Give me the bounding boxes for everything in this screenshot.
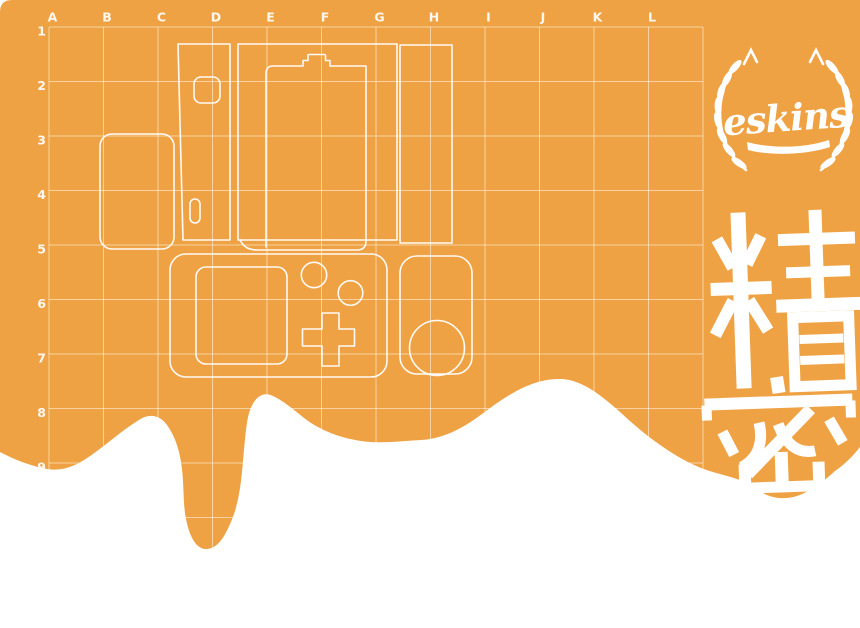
grid-row-label: 2 xyxy=(37,78,46,93)
grid-row-label: 9 xyxy=(37,460,46,475)
grid-row-label: 1 xyxy=(37,24,46,39)
grid-column-label: K xyxy=(593,10,604,25)
grid-column-label: J xyxy=(540,10,546,25)
logo-wordmark: eskins xyxy=(722,92,852,145)
grid-column-label: A xyxy=(48,10,58,25)
grid-column-label: B xyxy=(102,10,112,25)
grid-column-label: L xyxy=(648,10,656,25)
poster: ABCDEFGHIJKL 123456789 xyxy=(0,0,860,628)
grid-column-label: G xyxy=(374,10,384,25)
grid-column-label: I xyxy=(486,10,491,25)
grid-column-label: H xyxy=(429,10,439,25)
grid-row-label: 8 xyxy=(37,405,46,420)
poster-canvas: ABCDEFGHIJKL 123456789 xyxy=(0,0,860,628)
grid-row-label: 6 xyxy=(37,296,46,311)
grid-row-labels: 123456789 xyxy=(37,24,46,475)
grid-row-label: 5 xyxy=(37,242,46,257)
grid-column-label: C xyxy=(157,10,166,25)
grid-row-label: 3 xyxy=(37,133,46,148)
grid-column-label: F xyxy=(321,10,330,25)
grid-column-label: D xyxy=(211,10,221,25)
grid-row-label: 7 xyxy=(37,351,46,366)
grid-row-label: 4 xyxy=(37,187,46,202)
grid-column-label: E xyxy=(266,10,275,25)
